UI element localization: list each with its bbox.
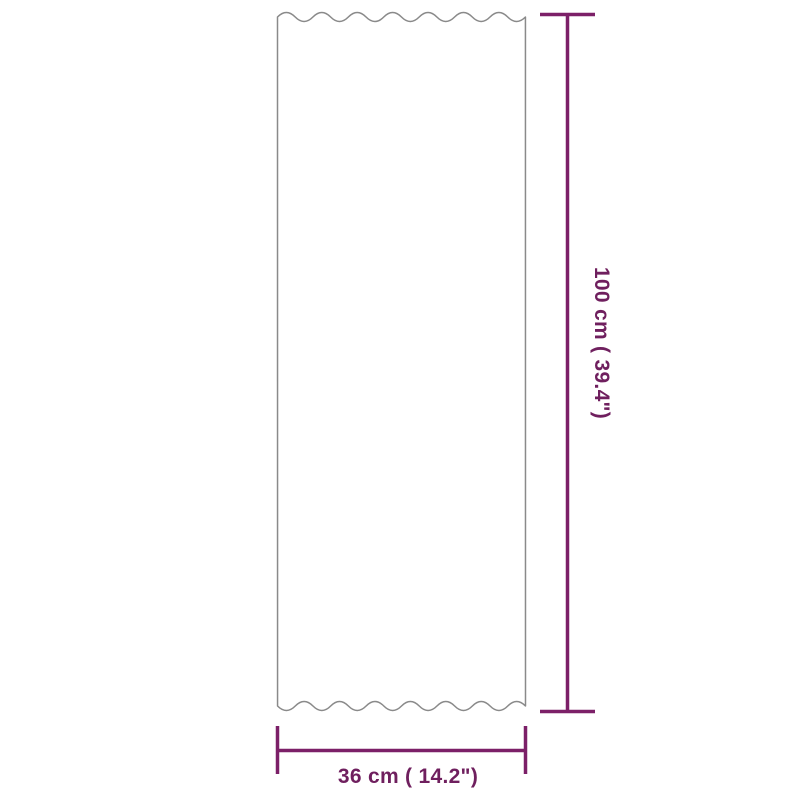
corrugated-panel-outline [278,13,526,711]
diagram-canvas: 100 cm ( 39.4") 36 cm ( 14.2") [0,0,800,800]
height-dimension-label: 100 cm ( 39.4") [589,267,613,419]
width-dimension-label: 36 cm ( 14.2") [338,765,478,789]
dimension-diagram-svg [0,0,800,800]
height-dimension-line [540,15,595,712]
